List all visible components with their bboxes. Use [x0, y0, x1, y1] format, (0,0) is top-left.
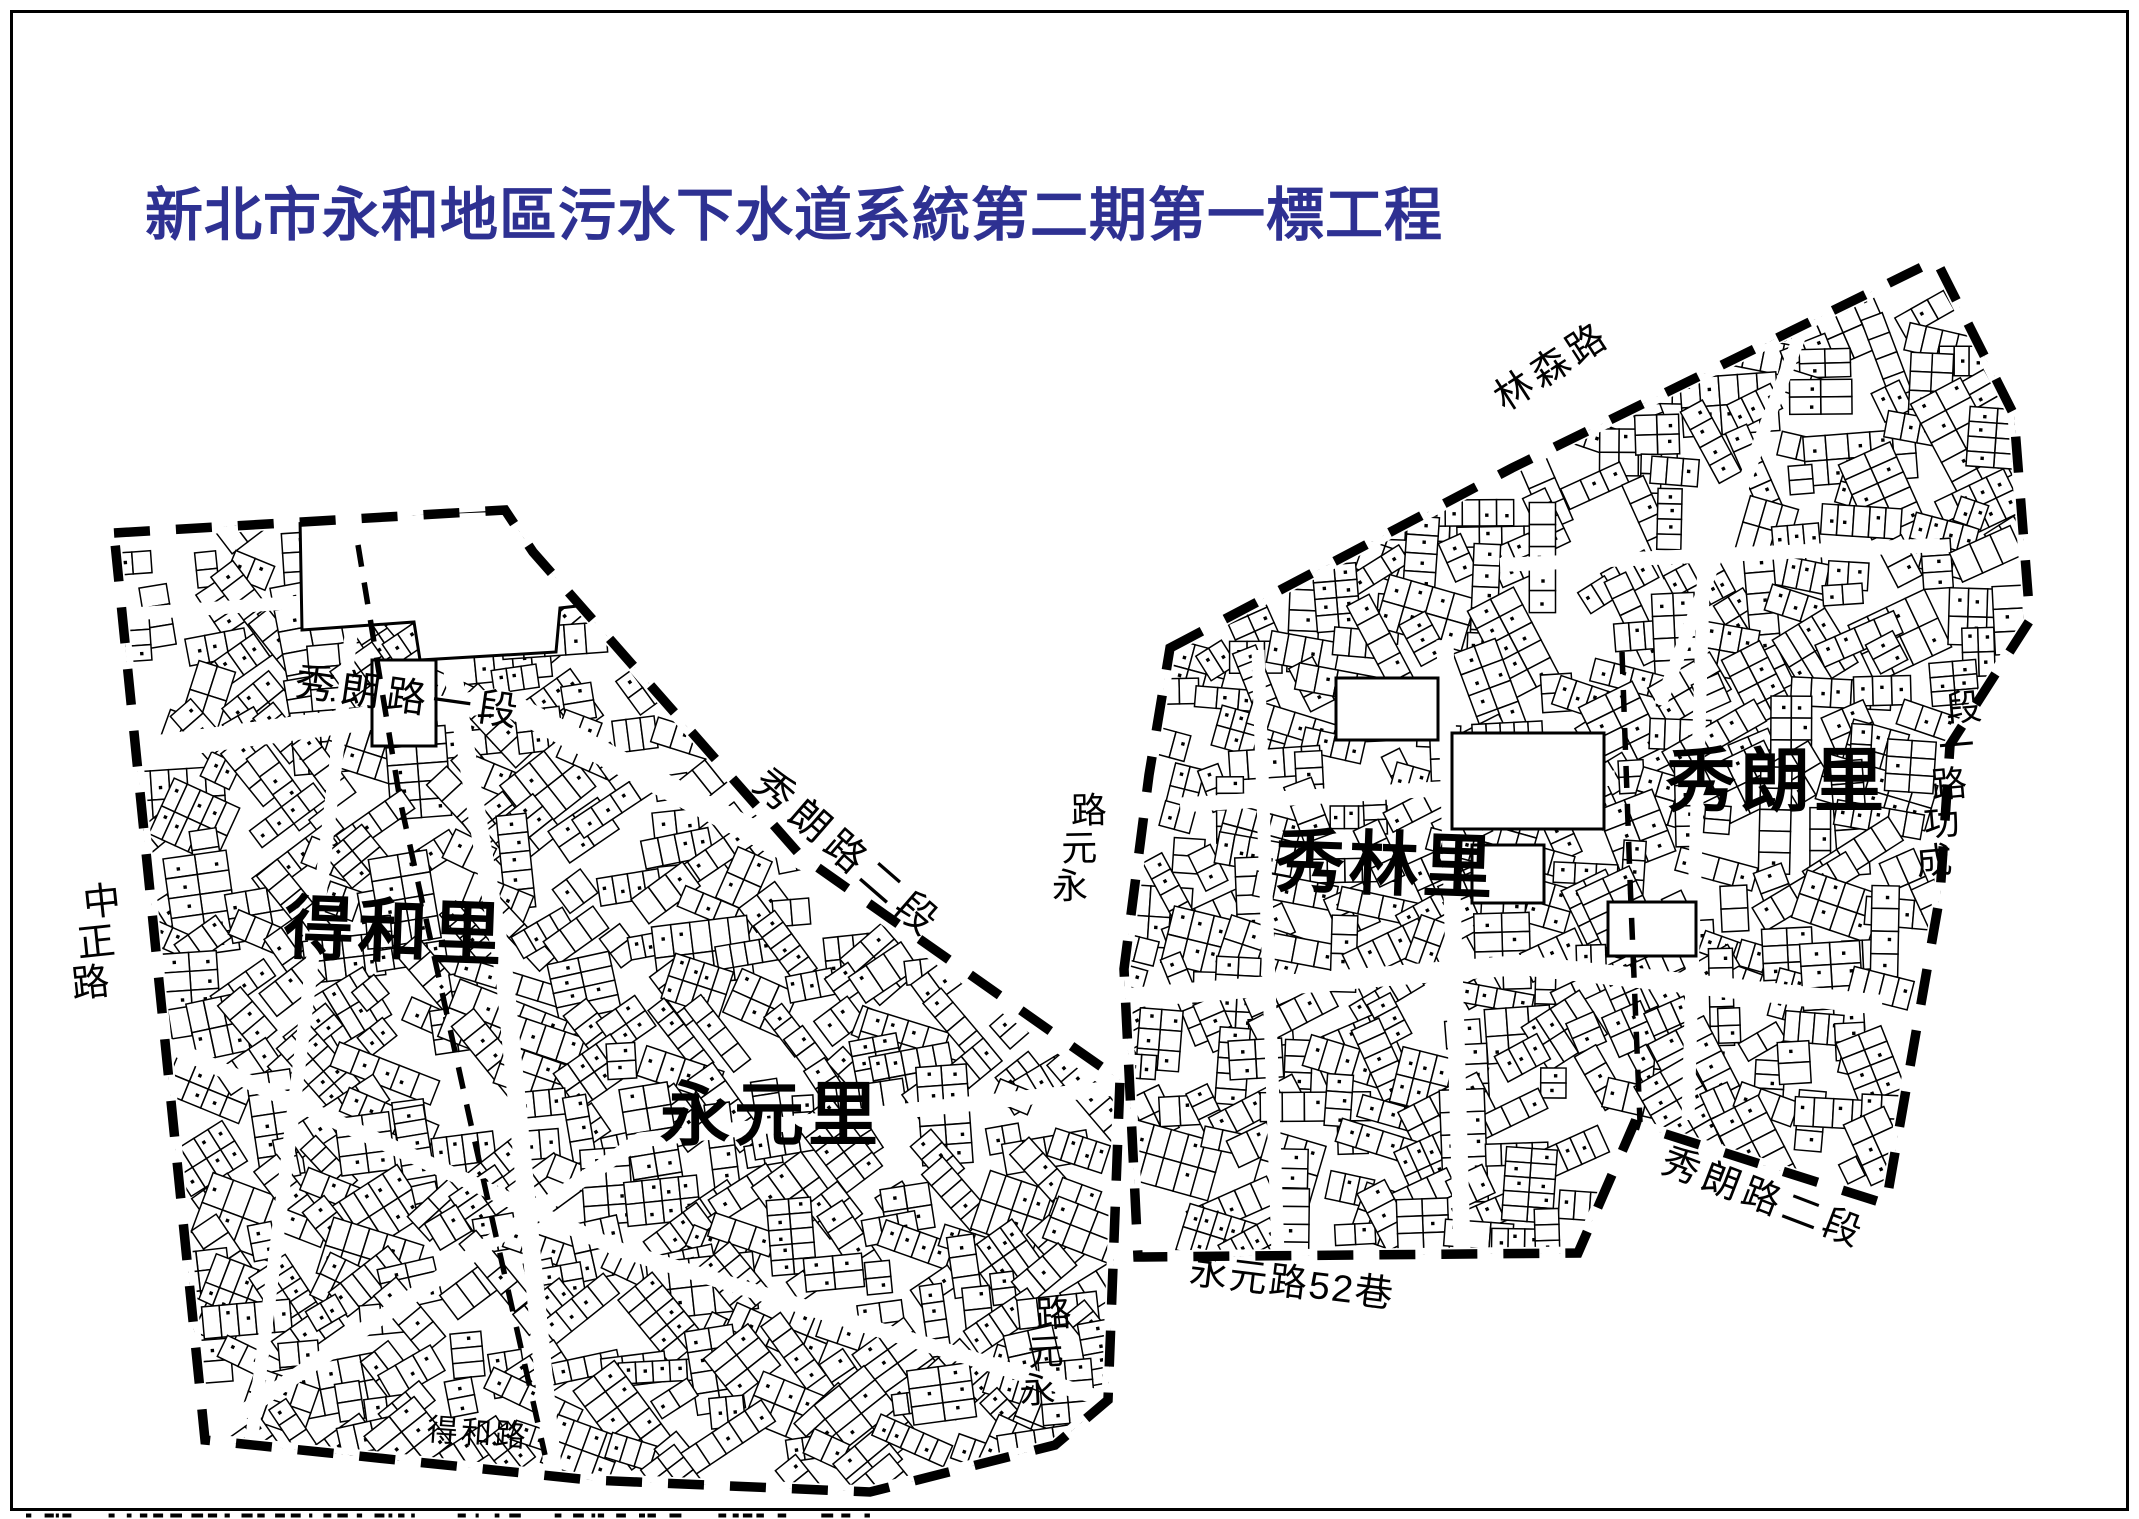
map-title: 新北市永和地區污水下水道系統第二期第一標工程 — [145, 168, 1443, 252]
district-yongyuan-li: 永元里 — [660, 1082, 882, 1152]
district-xiulang-li: 秀朗里 — [1666, 748, 1888, 818]
road-dehe: 得和路 — [426, 1414, 530, 1452]
cropped-edge-text — [26, 1514, 870, 1518]
district-dehe-li: 得和里 — [283, 895, 507, 973]
map-page: 新北市永和地區污水下水道系統第二期第一標工程 得和里永元里秀林里秀朗里中正路秀朗… — [0, 0, 2139, 1519]
project-area-east-texture — [1084, 260, 2041, 1288]
district-xiulin-li: 秀林里 — [1274, 828, 1498, 906]
project-area-west-texture — [96, 483, 1149, 1519]
